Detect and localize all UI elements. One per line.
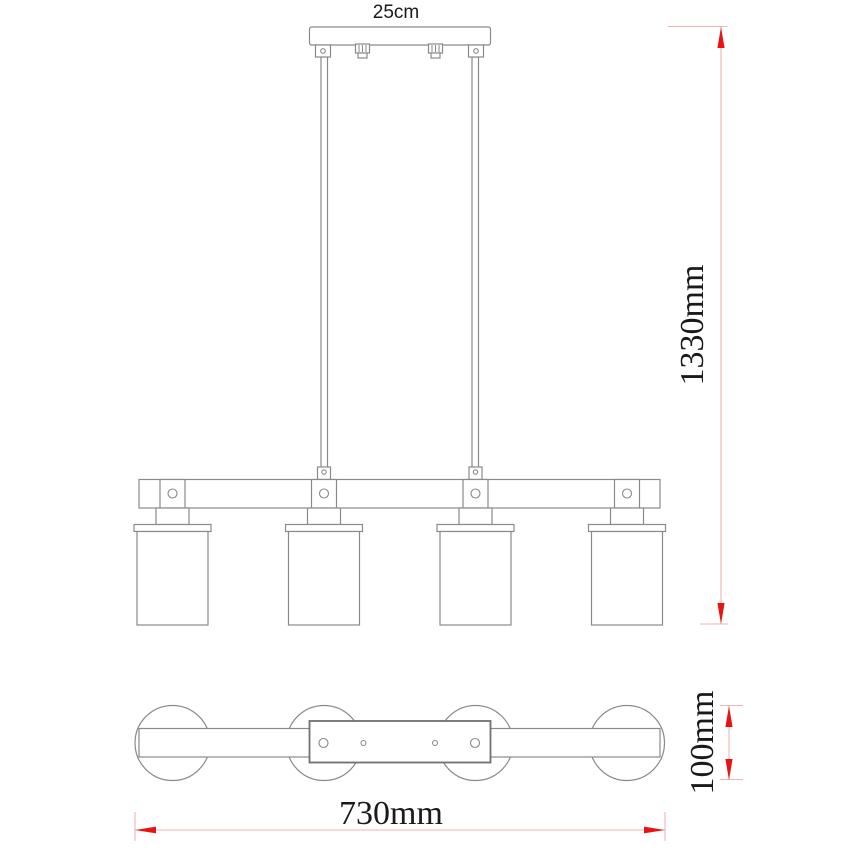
plate-screw-hole-left [361,741,366,746]
plan-canopy-plate [310,721,491,763]
height-dimension: 1330mm [668,27,728,625]
holder-screw-hole [471,489,480,498]
shade-rim-1 [134,525,211,532]
screw-base [358,53,367,58]
holder-screw-hole [168,489,177,498]
lamp-shade-3 [440,532,511,626]
plate-rod-hole-left [319,739,328,748]
rod-connector-right [469,467,482,480]
lamp-shade-2 [289,532,360,626]
plan-view [135,706,665,781]
depth-dimension-label: 100mm [684,691,721,795]
depth-dimension: 100mm [684,691,743,795]
ceiling-canopy [310,27,491,45]
width-dimension-label: 730mm [339,795,443,832]
cord-gripper-left-screw-hole [321,49,326,54]
canopy-width-label: 25cm [373,2,419,23]
height-dimension-label: 1330mm [674,265,711,386]
strain-relief-screw-left [356,44,370,58]
arrow-up-icon [725,706,732,727]
shade-rim-4 [589,525,666,532]
lamp-holder-1 [160,480,185,509]
suspension-rod-left [321,57,328,468]
suspension-rod-right [472,57,479,468]
holder-screw-hole [320,489,329,498]
socket-neck-1 [156,508,189,525]
lamp-shade-4 [592,532,663,626]
socket-neck-2 [308,508,341,525]
cord-gripper-right-screw-hole [474,49,479,54]
shade-rim-2 [286,525,363,532]
technical-drawing-page: 25cm 1330mm 730mm 100mm [0,0,868,868]
holder-screw-hole [623,489,632,498]
crossbar [139,480,660,509]
socket-neck-3 [459,508,492,525]
width-dimension: 730mm [135,795,665,841]
cord-gripper-left [316,45,331,57]
socket-neck-4 [611,508,644,525]
plate-rod-hole-right [471,739,480,748]
shade-rim-3 [437,525,514,532]
rod-connector-left [318,467,331,480]
arrow-up-icon [717,27,724,48]
lamp-holder-2 [312,480,337,509]
cord-gripper-right [469,45,484,57]
lamp-holder-3 [463,480,488,509]
lamp-holder-4 [615,480,640,509]
pendant-lamp-drawing: 25cm 1330mm 730mm 100mm [0,0,868,868]
arrow-right-icon [644,827,665,834]
arrow-down-icon [725,759,732,780]
front-elevation-view [134,27,666,625]
arrow-down-icon [717,603,724,624]
screw-base [431,53,440,58]
strain-relief-screw-right [429,44,443,58]
plate-screw-hole-right [433,741,438,746]
lamp-shade-1 [137,532,208,626]
arrow-left-icon [135,827,156,834]
